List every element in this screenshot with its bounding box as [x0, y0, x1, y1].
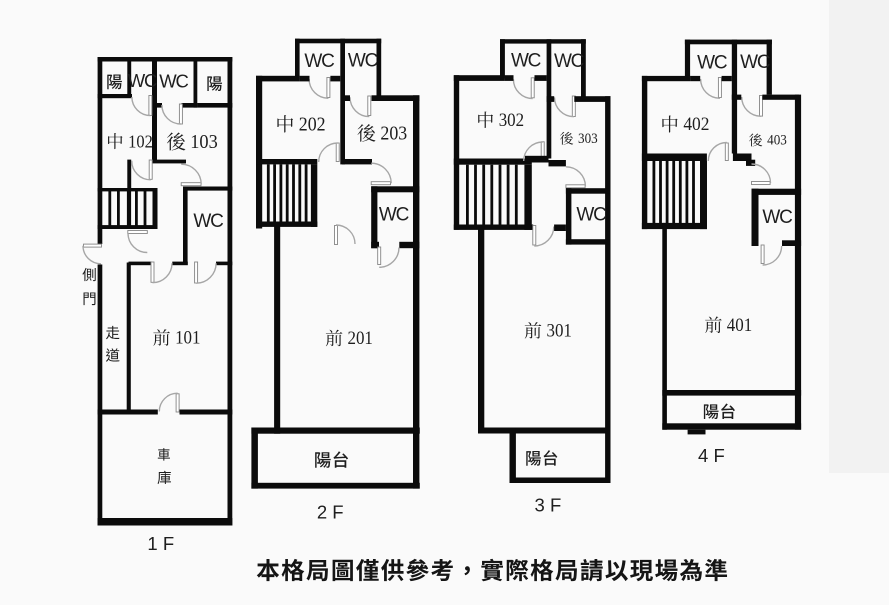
svg-text:WC: WC	[762, 207, 792, 228]
svg-text:WC: WC	[304, 51, 334, 72]
svg-text:102: 102	[128, 132, 153, 152]
svg-text:402: 402	[683, 114, 709, 135]
svg-text:WC: WC	[159, 71, 188, 92]
svg-text:401: 401	[727, 315, 752, 336]
svg-text:203: 203	[380, 123, 407, 145]
svg-text:103: 103	[190, 131, 218, 153]
svg-text:WC: WC	[740, 52, 770, 73]
svg-text:WC: WC	[511, 50, 541, 71]
svg-text:WC: WC	[554, 51, 584, 72]
svg-text:1 F: 1 F	[147, 533, 174, 554]
svg-text:303: 303	[578, 131, 598, 147]
svg-text:WC: WC	[697, 53, 727, 74]
svg-text:201: 201	[348, 328, 373, 349]
svg-text:403: 403	[767, 133, 787, 149]
svg-text:302: 302	[499, 110, 524, 131]
svg-text:WC: WC	[576, 205, 606, 226]
svg-text:4 F: 4 F	[698, 445, 725, 466]
svg-text:3 F: 3 F	[535, 495, 562, 516]
svg-text:WC: WC	[348, 51, 378, 72]
svg-text:202: 202	[299, 113, 326, 135]
svg-text:WC: WC	[128, 70, 157, 91]
svg-text:2 F: 2 F	[317, 502, 344, 523]
svg-text:WC: WC	[193, 211, 223, 232]
svg-text:WC: WC	[379, 204, 409, 225]
svg-text:101: 101	[175, 328, 200, 349]
svg-text:301: 301	[547, 320, 572, 341]
